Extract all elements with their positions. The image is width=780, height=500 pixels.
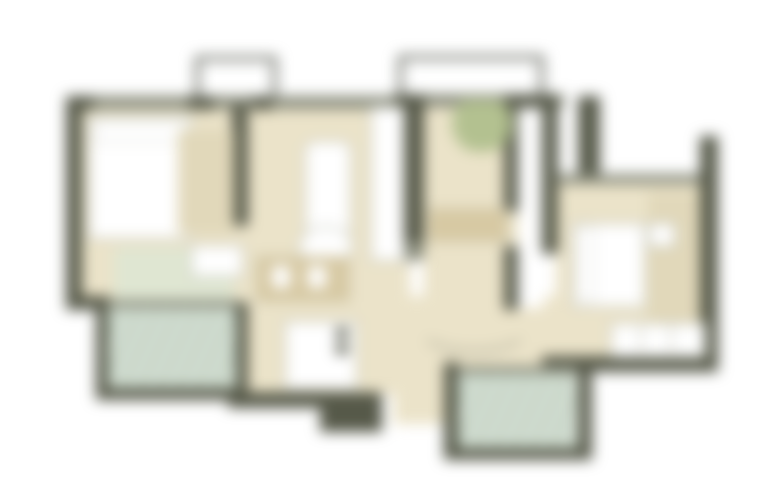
balcony-bottom-center-floor xyxy=(458,374,576,450)
shaft-strip xyxy=(518,108,544,308)
dining-chair-2 xyxy=(308,266,326,288)
outer-wall-top-node-mid1 xyxy=(188,96,214,110)
wall-stub-bottom xyxy=(320,392,382,432)
floor-plan-screenshot xyxy=(0,0,780,500)
dining-chair-1 xyxy=(272,266,290,288)
balcony-bl-wall-bottom xyxy=(96,388,248,400)
outer-wall-top-node-mid2 xyxy=(252,96,272,110)
balcony-bl-wall-right xyxy=(236,302,248,400)
wardrobe-divider-1 xyxy=(640,324,642,352)
entry-console xyxy=(428,208,508,242)
balcony-bc-wall-right xyxy=(578,362,592,460)
wardrobe-right xyxy=(610,322,706,358)
balcony-bottom-left-floor xyxy=(108,306,236,394)
wall-entry-left xyxy=(404,94,424,242)
nightstand-right xyxy=(648,222,676,248)
plant xyxy=(448,100,516,152)
shaft-gap xyxy=(558,110,578,176)
bedroom-right-window-sill xyxy=(556,174,706,184)
entry-wall-top-node-right xyxy=(515,94,545,108)
outer-wall-left xyxy=(66,96,82,310)
balcony-passage-floor xyxy=(394,358,446,424)
bedroom-right-floor-shade xyxy=(648,192,700,322)
balcony-bl-threshold xyxy=(108,300,236,308)
balcony-bc-wall-left xyxy=(444,362,458,460)
dresser-left xyxy=(190,244,244,278)
wall-bedroom-living xyxy=(232,104,248,226)
bedroom-left-door-swing xyxy=(178,130,234,234)
balcony-bc-threshold xyxy=(458,366,576,374)
wardrobe-divider-2 xyxy=(670,324,672,352)
balcony-bl-wall-left xyxy=(96,302,108,400)
kitchen-burner-2 xyxy=(336,344,348,354)
bed-right-pillow xyxy=(576,226,594,302)
wall-entry-right-lower xyxy=(504,246,518,310)
dining-table xyxy=(256,256,350,302)
sofa xyxy=(304,140,352,240)
balcony-bc-wall-bottom xyxy=(444,448,592,460)
wall-shaft-right xyxy=(578,96,600,184)
bed-left-pillow xyxy=(94,120,184,142)
wall-entry-left-stub xyxy=(404,242,424,260)
floor-plan xyxy=(0,0,780,500)
kitchen-burner-1 xyxy=(336,328,348,338)
door-swing-arc xyxy=(416,300,532,352)
